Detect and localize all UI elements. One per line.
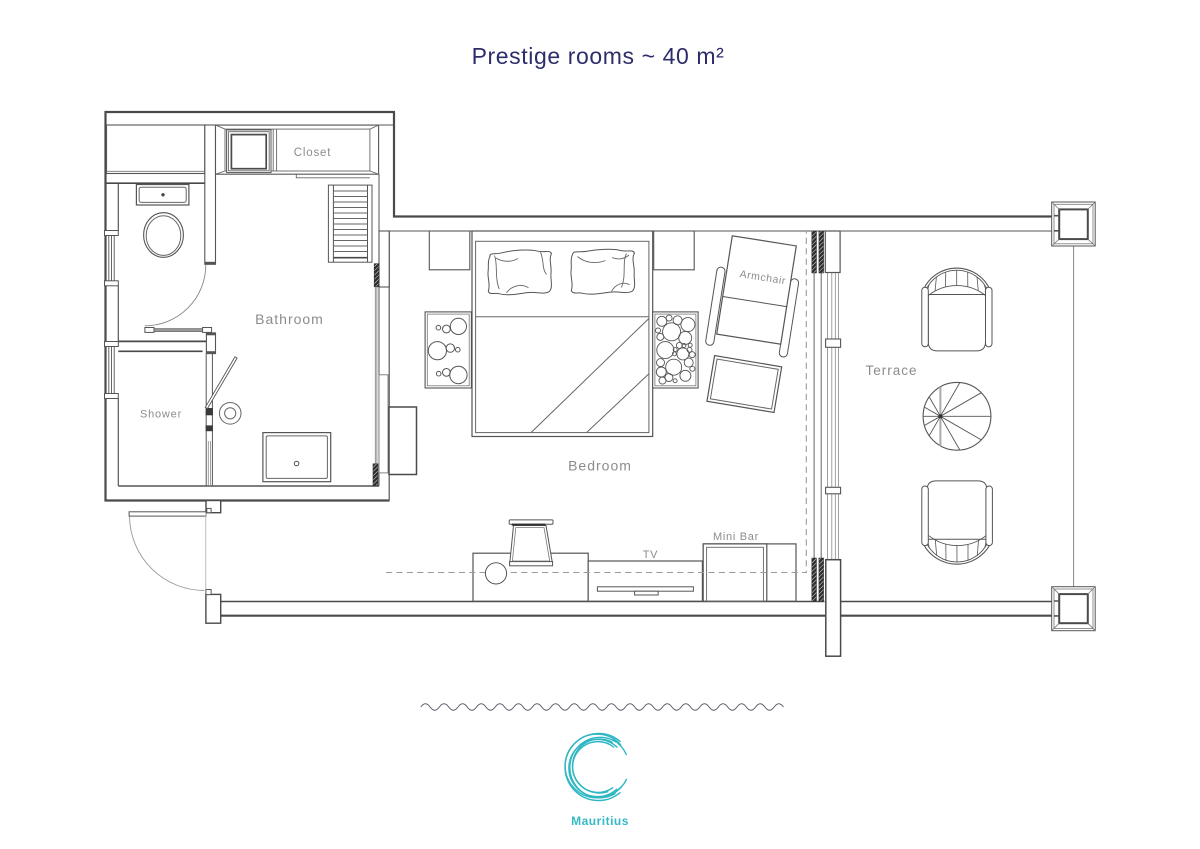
svg-text:Bedroom: Bedroom (568, 458, 632, 474)
svg-text:TV: TV (643, 549, 658, 561)
svg-text:Mauritius: Mauritius (571, 814, 629, 828)
svg-text:Prestige rooms ~ 40 m²: Prestige rooms ~ 40 m² (472, 43, 725, 69)
svg-text:Shower: Shower (140, 409, 182, 421)
svg-text:Bathroom: Bathroom (255, 311, 324, 327)
svg-text:Mini Bar: Mini Bar (713, 531, 759, 543)
svg-text:Closet: Closet (294, 147, 331, 159)
svg-text:Terrace: Terrace (865, 363, 917, 378)
